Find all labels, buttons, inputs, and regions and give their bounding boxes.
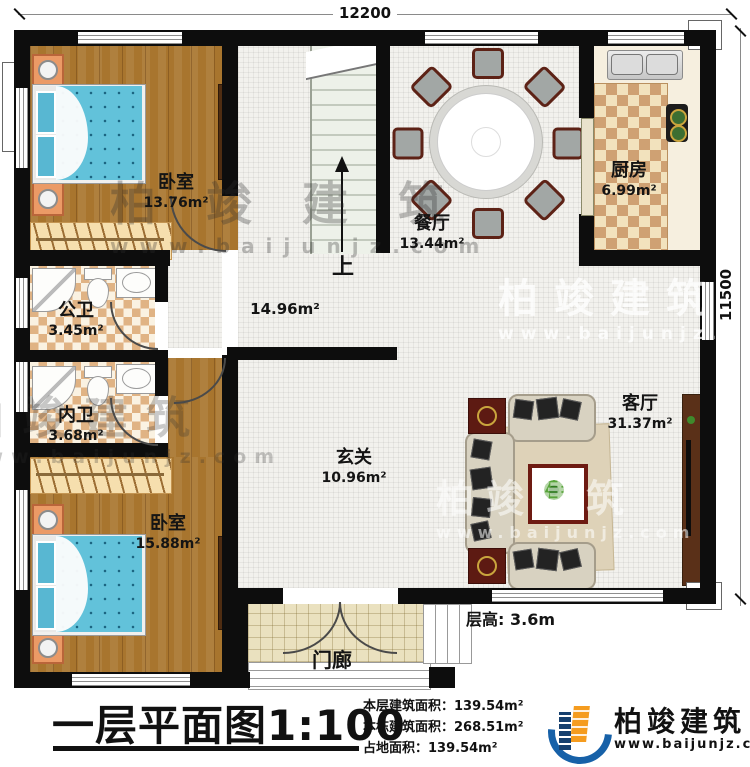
stat-label: 本层建筑面积： [363,699,454,714]
room-label-foyer: 玄关 10.96m² [294,447,414,487]
wall-kitchen-left-top [579,46,594,118]
sink-basin [646,54,678,75]
floor-height-key: 层高: [466,610,504,629]
side-table-compass-icon [477,406,497,426]
lamp-icon [38,60,58,80]
plant-icon [544,480,564,500]
room-label-kitchen: 厨房 6.99m² [569,160,689,200]
stat-value: 268.51m² [454,720,523,735]
side-table-compass-icon [477,556,497,576]
tv-icon [686,440,691,536]
wardrobe [30,458,172,494]
floor-plan-page: 柏竣建筑 www.baijunjz.com 柏竣建筑 www.baijunjz.… [0,0,750,767]
wall-foyer-bottom [248,588,283,604]
room-name: 卧室 [116,172,236,195]
stat-label: 本栋建筑面积： [363,720,454,735]
lamp-icon [38,510,58,530]
sofa-pillow [513,549,535,571]
wall-bath-public-right [155,266,168,302]
window [492,590,663,602]
room-area: 3.68m² [16,428,136,446]
wall-kitchen-bottom [579,250,716,266]
sofa-pillow [559,398,582,421]
plan-title: 一层平面图1:100 [52,692,406,753]
room-area: 31.37m² [580,416,700,434]
pillow [36,541,56,585]
window [72,674,190,686]
room-name: 卧室 [108,513,228,536]
sofa-pillow [470,467,494,491]
stairs-up-label: 上 [328,254,358,282]
room-label-living: 客厅 31.37m² [580,393,700,433]
room-label-bath-public: 公卫 3.45m² [16,300,136,340]
window [16,88,28,168]
stat-row: 本栋建筑面积：268.51m² [363,717,523,738]
stairs-up-text: 上 [332,255,354,280]
title-underline [53,746,359,751]
window [702,282,714,340]
lamp-icon [38,638,58,658]
stat-row: 本层建筑面积：139.54m² [363,696,523,717]
room-name: 内卫 [16,405,136,428]
dining-chair [553,128,584,160]
room-area: 3.45m² [16,323,136,341]
room-name: 公卫 [16,300,136,323]
stat-value: 139.54m² [428,741,497,756]
dining-chair [393,128,424,160]
room-area: 6.99m² [569,183,689,201]
room-name: 客厅 [580,393,700,416]
stat-value: 139.54m² [454,699,523,714]
sofa-pillow [536,397,559,420]
sofa-pillow [470,520,491,541]
dimension-top-value: 12200 [333,4,397,22]
porch-pillar [429,667,455,688]
window [425,32,538,44]
brand-logo-icon [546,698,608,758]
room-area: 15.88m² [108,536,228,554]
pillow [36,135,56,178]
window [16,490,28,590]
window [608,32,684,44]
wall-bath-private-right [155,360,168,396]
sink-icon [122,368,151,389]
room-name: 餐厅 [372,213,492,236]
wall-bath-private-bottom [14,443,168,457]
sofa-pillow [470,438,492,460]
wardrobe-rod [36,238,164,241]
room-area: 14.96m² [225,300,345,319]
stairs-arrow-up-icon [335,156,349,172]
room-name: 门廊 [272,648,392,673]
sink-icon [122,272,151,293]
brand-url: www.baijunjz.com [614,737,750,752]
stairs [310,46,378,254]
wall-bath-divider [14,350,168,362]
wardrobe-rod [36,473,164,476]
room-name: 厨房 [569,160,689,183]
dimension-right-value: 11500 [717,265,735,325]
burner-icon [670,109,687,126]
room-area: 13.76m² [116,195,236,213]
room-name: 玄关 [294,447,414,470]
sofa-pillow [536,548,559,571]
porch-steps-right [423,604,472,664]
room-label-dining: 餐厅 13.44m² [372,213,492,253]
stat-row: 占地面积：139.54m² [363,738,523,759]
sink-basin [611,54,643,75]
sofa-pillow [513,399,534,420]
brand-name: 柏竣建筑 [614,700,746,740]
dimension-line-right [740,28,741,606]
dining-table-center [471,127,501,157]
burner-icon [670,125,687,142]
pillow [36,586,56,630]
room-label-hall: 14.96m² [225,300,345,319]
logo-building-blue [559,712,571,750]
stairs-arrow-stem [341,170,343,252]
lamp-icon [38,189,58,209]
bath-corridor-floor [168,250,222,348]
plan-title-text: 一层平面图 [52,701,267,750]
room-label-bedroom-bottom: 卧室 15.88m² [108,513,228,553]
area-stats: 本层建筑面积：139.54m² 本栋建筑面积：268.51m² 占地面积：139… [363,696,523,759]
sofa-pillow [471,497,492,518]
stat-label: 占地面积： [363,741,428,756]
wall-hall-south [227,347,397,360]
window [78,32,182,44]
pillow [36,91,56,134]
room-label-bedroom-top: 卧室 13.76m² [116,172,236,212]
floor-height-label: 层高: 3.6m [466,610,596,630]
room-label-bath-private: 内卫 3.68m² [16,405,136,445]
dining-chair [472,48,504,79]
wall-bedroom-top-bottom [14,250,170,266]
floor-height-value: 3.6m [510,610,555,629]
room-area: 10.96m² [294,470,414,488]
room-area: 13.44m² [372,236,492,254]
room-label-porch: 门廊 [272,648,392,673]
